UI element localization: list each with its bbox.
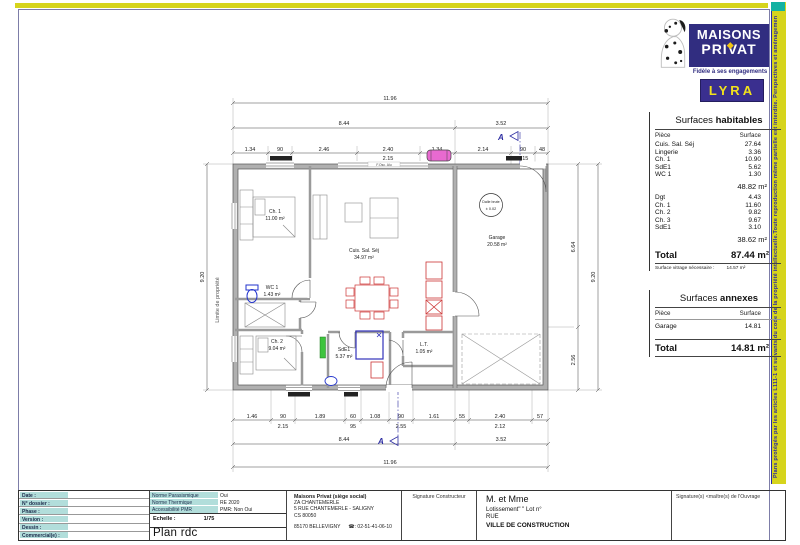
norm-label: Norme Thermique: [150, 499, 218, 505]
room-area-wc1: 1.43 m²: [264, 292, 281, 298]
dim-label: 2.56: [571, 355, 577, 366]
field-dossier: N° dossier :: [20, 500, 68, 506]
room-label-living: Cuis. Sal. Séj: [349, 248, 379, 254]
dim-label: 2.14: [478, 147, 489, 153]
company-city: 85170 BELLEVIGNY: [294, 524, 340, 530]
dim-label: 2.12: [495, 424, 506, 430]
norm-label: Norme Parasismique: [150, 492, 218, 498]
dossier-fields: Date : N° dossier : Phase : Version : De…: [19, 491, 149, 540]
room-area-lt: 1.05 m²: [416, 349, 433, 355]
dim-label: 2.46: [319, 147, 330, 153]
dim-label: 3.52: [496, 121, 507, 127]
field-phase: Phase :: [20, 508, 68, 514]
field-version: Version :: [20, 516, 68, 522]
room-label-lt: L.T.: [420, 342, 428, 348]
norm-label: Accessibilité PMR: [150, 506, 218, 512]
dim-label: 6.64: [571, 242, 577, 253]
sink-icon: [325, 377, 337, 386]
boundary-label: Limite de propriété: [215, 277, 221, 323]
dim-label: 11.96: [383, 460, 396, 466]
dim-label: 9.20: [591, 272, 597, 283]
dim-label: 1.46: [247, 414, 258, 420]
radiator-icon: [320, 337, 326, 358]
dim-label: 57: [537, 414, 543, 420]
dim-label: 2.40: [495, 414, 506, 420]
client-block: M. et Mme Lotissement" " Lot n° RUE VILL…: [477, 491, 680, 529]
dim-label: 1.08: [370, 414, 381, 420]
title-block: Date : N° dossier : Phase : Version : De…: [18, 490, 786, 541]
room-label-ch2: Ch. 2: [271, 339, 283, 345]
dim-label: 11.96: [383, 96, 396, 102]
window-label: F.Osc. Alu: [376, 163, 391, 167]
dim-label: 2.40: [383, 147, 394, 153]
section-marker-bottom: A: [377, 437, 384, 446]
phone-icon-and-number: ☎: 02-51-41-06-10: [348, 524, 391, 530]
room-label-ch1: Ch. 1: [269, 209, 281, 215]
room-label-garage: Garage: [489, 235, 506, 241]
floor-plan: 11.96 8.44 3.52 1.34 90 2.46 2.40 1.34 2…: [0, 0, 800, 545]
room-area-ch2: 9.04 m²: [269, 346, 286, 352]
room-area-sde1: 5.37 m²: [336, 354, 353, 360]
dim-label: 60: [350, 414, 356, 420]
dim-label: 90: [280, 414, 286, 420]
dim-label: 90: [520, 147, 526, 153]
dim-label: 9.20: [200, 272, 206, 283]
dim-label: 2.15: [278, 424, 289, 430]
dim-label: 90: [398, 414, 404, 420]
section-marker-top: A: [497, 133, 504, 142]
norms-and-scale: Norme ParasismiqueOui Norme ThermiqueRE …: [150, 491, 286, 540]
room-label-sde1: SdE1: [338, 347, 350, 353]
svg-text:Dalle brute: Dalle brute: [482, 200, 499, 204]
dim-label: 1.34: [245, 147, 256, 153]
dim-label: 1.89: [315, 414, 326, 420]
company-block: Maisons Privat (siège social) ZA CHANTEM…: [287, 491, 408, 543]
room-area-garage: 20.58 m²: [487, 242, 507, 248]
client-name: M. et Mme: [486, 494, 680, 504]
room-label-wc1: WC 1: [266, 285, 279, 291]
dim-label: 8.44: [339, 437, 350, 443]
dim-label: 8.44: [339, 121, 350, 127]
svg-text:± 0.02: ± 0.02: [486, 207, 497, 211]
plan-sheet: { "strips": { "copyright_vertical": "Pla…: [0, 0, 800, 545]
dim-label: 90: [277, 147, 283, 153]
room-area-living: 34.97 m²: [354, 255, 374, 261]
signature-builder-cell: Signature Constructeur: [402, 491, 476, 500]
heat-pump-unit: [427, 150, 451, 161]
level-marker: Dalle brute ± 0.02: [480, 194, 503, 217]
dim-label: 2.55: [396, 424, 407, 430]
field-date: Date :: [20, 492, 68, 498]
dim-label: 95: [350, 424, 356, 430]
dim-label: 3.52: [496, 437, 507, 443]
signature-owner-cell: Signature(s) <maître(s) de l'Ouvrage: [672, 491, 786, 500]
field-commercial: Commercial(e) :: [20, 532, 68, 538]
room-area-ch1: 11.00 m²: [265, 216, 285, 222]
plan-title: Plan rdc: [150, 525, 198, 539]
dim-label: 1.61: [429, 414, 440, 420]
dim-label: 48: [539, 147, 545, 153]
field-dessin: Dessin :: [20, 524, 68, 530]
dim-label: 55: [459, 414, 465, 420]
